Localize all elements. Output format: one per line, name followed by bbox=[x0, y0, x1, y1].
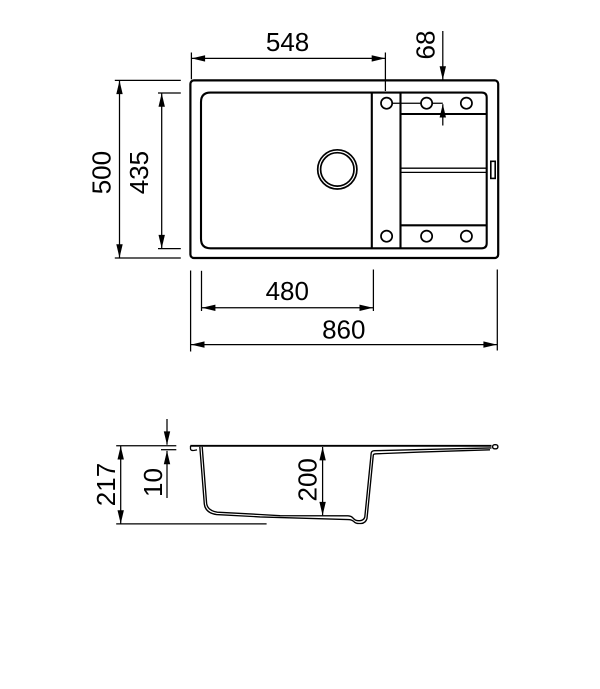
svg-text:480: 480 bbox=[266, 276, 309, 306]
svg-text:10: 10 bbox=[138, 468, 168, 497]
svg-text:548: 548 bbox=[266, 27, 309, 57]
svg-text:435: 435 bbox=[124, 151, 154, 194]
svg-text:217: 217 bbox=[91, 463, 121, 506]
svg-text:200: 200 bbox=[292, 458, 322, 501]
svg-text:68: 68 bbox=[410, 31, 440, 60]
svg-text:860: 860 bbox=[322, 315, 365, 345]
svg-text:500: 500 bbox=[86, 151, 116, 194]
